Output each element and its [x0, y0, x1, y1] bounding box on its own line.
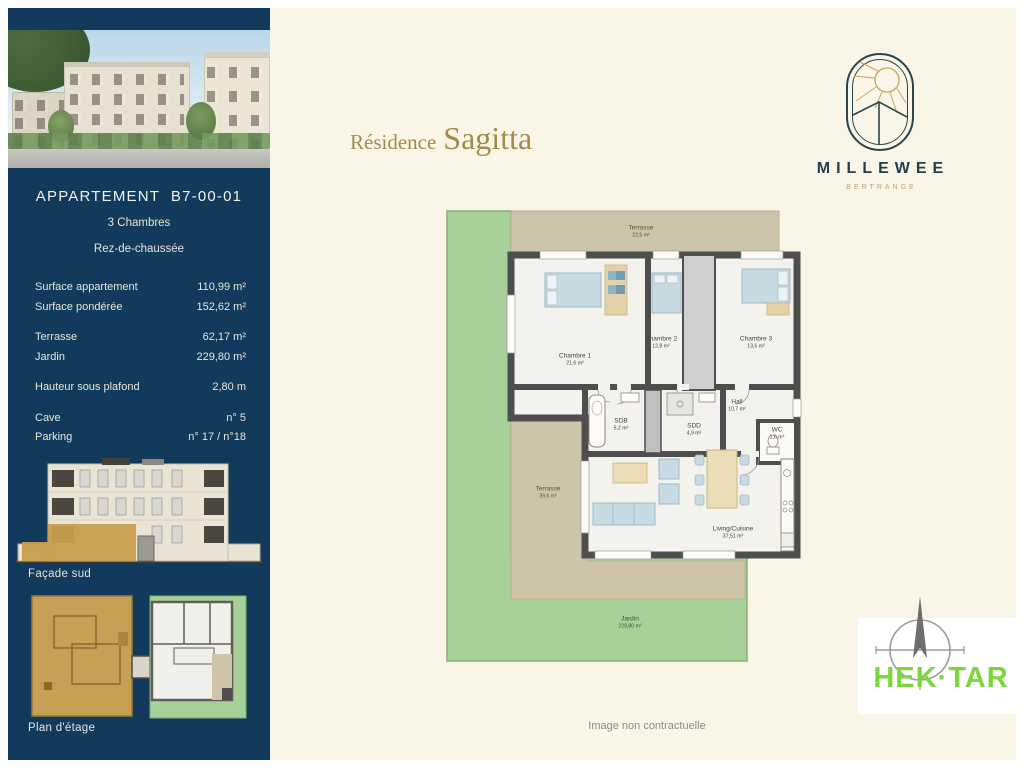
brochure-page: APPARTEMENT B7-00-01 3 Chambres Rez-de-c… — [0, 0, 1024, 768]
apartment-unit: B7-00-01 — [171, 188, 242, 205]
plan-thumb-caption: Plan d'étage — [28, 722, 95, 734]
rooms-subtitle: 3 Chambres — [8, 217, 270, 229]
apartment-heading: APPARTEMENT B7-00-01 — [8, 188, 270, 205]
room-label-chambre-2: Chambre 212,8 m² — [645, 336, 677, 351]
page-title: RésidenceSagitta — [350, 120, 532, 157]
facade-sud-illustration — [14, 456, 264, 574]
room-label-chambre-1: Chambre 121,6 m² — [559, 353, 591, 368]
room-label-terrasse-top: Terrasse22,5 m² — [629, 225, 654, 240]
room-label-chambre-3: Chambre 313,6 m² — [740, 336, 772, 351]
room-label-terrasse-left: Terrasse39,6 m² — [536, 486, 561, 501]
residence-name: Sagitta — [443, 120, 532, 156]
room-label-living: Living/Cuisine37,51 m² — [713, 526, 753, 541]
facade-caption: Façade sud — [28, 568, 91, 580]
road — [8, 149, 270, 168]
partner-name: HEK·TAR — [860, 662, 1022, 695]
spec-row: Surface pondérée152,62 m² — [8, 298, 270, 318]
apartment-label: APPARTEMENT — [36, 188, 160, 205]
residence-photo — [8, 30, 270, 168]
spec-list: Surface appartement110,99 m² Surface pon… — [8, 278, 270, 448]
room-label-jardin: Jardin229,80 m² — [618, 616, 641, 631]
sidebar: APPARTEMENT B7-00-01 3 Chambres Rez-de-c… — [8, 8, 270, 760]
floor-subtitle: Rez-de-chaussée — [8, 243, 270, 255]
spec-row: Caven° 5 — [8, 409, 270, 429]
millewee-sun-roof-icon — [845, 52, 915, 152]
spec-row: Hauteur sous plafond2,80 m — [8, 378, 270, 398]
brand-block: MILLEWEE BERTRANGE — [795, 52, 965, 191]
brand-name: MILLEWEE — [795, 160, 965, 178]
floorplan-drawing — [445, 203, 805, 667]
spec-row: Parkingn° 17 / n°18 — [8, 428, 270, 448]
floorplan: Terrasse22,5 m² Chambre 121,6 m² Chambre… — [445, 203, 805, 667]
brand-location: BERTRANGE — [795, 184, 965, 191]
floor-thumbnail-illustration — [14, 592, 264, 726]
disclaimer-text: Image non contractuelle — [445, 720, 849, 732]
room-label-hall: Hall10,7 m² — [728, 399, 746, 414]
residence-label: Résidence — [350, 130, 436, 154]
spec-row: Jardin229,80 m² — [8, 348, 270, 368]
spec-row: Terrasse62,17 m² — [8, 328, 270, 348]
room-label-wc: WC1,6 m² — [770, 427, 785, 442]
room-label-sdd: SDD4,9 m² — [687, 423, 702, 438]
spec-row: Surface appartement110,99 m² — [8, 278, 270, 298]
room-label-sdb: SDB5,2 m² — [614, 418, 629, 433]
